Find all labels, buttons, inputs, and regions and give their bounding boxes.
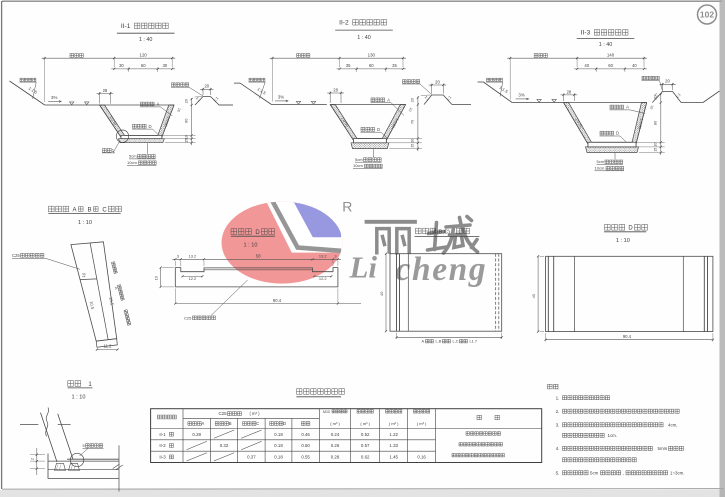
svg-text:35: 35 xyxy=(346,63,351,68)
svg-text:B: B xyxy=(87,207,91,213)
svg-text:120: 120 xyxy=(140,53,148,58)
svg-text:cheng: cheng xyxy=(396,251,488,288)
svg-text:A: A xyxy=(202,421,205,426)
svg-text:,: , xyxy=(623,470,624,475)
svg-text:1 : 10: 1 : 10 xyxy=(244,242,258,248)
svg-text:2: 2 xyxy=(31,458,35,460)
svg-text:90.4: 90.4 xyxy=(623,334,632,339)
svg-text:10: 10 xyxy=(411,139,415,143)
svg-text:L,B: L,B xyxy=(436,339,442,344)
svg-text:0.18: 0.18 xyxy=(274,455,283,460)
svg-text:4.: 4. xyxy=(556,446,560,451)
svg-text:0.26: 0.26 xyxy=(331,443,340,448)
svg-text:3%: 3% xyxy=(278,94,284,99)
svg-text:58: 58 xyxy=(256,254,261,259)
svg-text:( m³ ): ( m³ ) xyxy=(360,421,370,426)
svg-text:D: D xyxy=(377,127,380,132)
svg-text:0.55: 0.55 xyxy=(301,455,310,460)
svg-text:0.18: 0.18 xyxy=(274,432,283,437)
svg-text:30: 30 xyxy=(163,63,168,68)
svg-text:5cm: 5cm xyxy=(129,154,137,159)
svg-text:0.32: 0.32 xyxy=(220,443,229,448)
svg-text:15: 15 xyxy=(654,148,658,152)
svg-text:1cm.: 1cm. xyxy=(608,433,618,438)
svg-text:A: A xyxy=(626,105,629,110)
svg-text:60: 60 xyxy=(369,63,374,68)
svg-text:3%: 3% xyxy=(51,95,57,100)
svg-text:3: 3 xyxy=(177,254,179,259)
svg-text:4cm,: 4cm, xyxy=(668,422,678,427)
svg-text:10cm: 10cm xyxy=(127,160,137,165)
svg-text:3.: 3. xyxy=(556,422,560,427)
svg-text:B: B xyxy=(229,421,232,426)
svg-text:0.52: 0.52 xyxy=(361,432,370,437)
svg-text:( m³ ): ( m³ ) xyxy=(330,421,340,426)
svg-text:35: 35 xyxy=(392,63,397,68)
svg-text:D: D xyxy=(628,226,633,232)
svg-text:28: 28 xyxy=(333,87,338,92)
svg-text:A(B,C): A(B,C) xyxy=(433,229,450,235)
svg-text:D: D xyxy=(616,131,619,136)
svg-text:C: C xyxy=(102,207,107,213)
svg-text:C25: C25 xyxy=(12,253,20,258)
svg-text:13.2: 13.2 xyxy=(189,254,197,259)
svg-text:3: 3 xyxy=(334,254,336,259)
svg-text:A: A xyxy=(157,102,160,107)
svg-text:0.46: 0.46 xyxy=(301,432,310,437)
svg-text:1.22: 1.22 xyxy=(389,432,398,437)
svg-text:M10: M10 xyxy=(323,410,330,414)
svg-text:II-3: II-3 xyxy=(581,30,591,37)
svg-text:1 : 40: 1 : 40 xyxy=(139,37,153,43)
svg-text:0.50: 0.50 xyxy=(301,443,310,448)
svg-text:5cm: 5cm xyxy=(355,157,363,162)
svg-text:10: 10 xyxy=(654,143,658,147)
svg-text:C: C xyxy=(256,421,259,426)
svg-text:1.: 1. xyxy=(556,395,560,400)
svg-text::: : xyxy=(557,384,558,390)
svg-text:1.33: 1.33 xyxy=(389,443,398,448)
svg-text:D: D xyxy=(283,421,286,426)
svg-text:2.: 2. xyxy=(556,409,560,414)
svg-text:3%: 3% xyxy=(518,92,524,97)
svg-text:II-3: II-3 xyxy=(159,455,166,460)
svg-text:1~3cm.: 1~3cm. xyxy=(670,470,685,475)
svg-text:II-2: II-2 xyxy=(159,443,166,448)
svg-text:20: 20 xyxy=(435,79,440,84)
svg-text:0.37: 0.37 xyxy=(247,455,256,460)
svg-text:L1.7: L1.7 xyxy=(470,339,478,344)
svg-text:R: R xyxy=(342,199,352,215)
svg-text:( m³ ): ( m³ ) xyxy=(250,411,261,416)
svg-text:1 : 10: 1 : 10 xyxy=(78,220,92,226)
svg-text:0.18: 0.18 xyxy=(274,443,283,448)
svg-text:90.4: 90.4 xyxy=(273,298,282,303)
svg-text:5cm: 5cm xyxy=(597,159,605,164)
svg-text:( m³ ): ( m³ ) xyxy=(389,421,399,426)
svg-text:28: 28 xyxy=(103,88,108,93)
svg-text:A: A xyxy=(387,97,390,102)
svg-text:A: A xyxy=(422,339,425,344)
svg-text:28: 28 xyxy=(567,89,572,94)
svg-text:Li: Li xyxy=(349,250,378,285)
svg-text:10cm: 10cm xyxy=(595,165,605,170)
svg-text:( m³ ): ( m³ ) xyxy=(417,421,427,426)
svg-text:13.2: 13.2 xyxy=(319,254,327,259)
svg-text:60: 60 xyxy=(608,63,613,68)
svg-text:5: 5 xyxy=(83,443,85,448)
svg-text:C25: C25 xyxy=(218,411,227,416)
svg-text:1 : 40: 1 : 40 xyxy=(599,42,613,48)
svg-text:40: 40 xyxy=(632,63,637,68)
svg-text:D: D xyxy=(148,124,151,129)
svg-text:20: 20 xyxy=(204,84,209,89)
svg-text:40: 40 xyxy=(584,63,589,68)
svg-text:12.2: 12.2 xyxy=(319,276,327,281)
svg-text:15: 15 xyxy=(184,139,188,143)
svg-text:L,C: L,C xyxy=(453,339,459,344)
svg-text:C25: C25 xyxy=(184,316,192,321)
svg-text:130: 130 xyxy=(368,53,376,58)
svg-text:5mm: 5mm xyxy=(658,446,668,451)
svg-text:1 : 40: 1 : 40 xyxy=(357,35,371,41)
svg-text:1 : 10: 1 : 10 xyxy=(72,394,86,400)
svg-text:5cm: 5cm xyxy=(590,470,599,475)
svg-text:D: D xyxy=(255,230,260,236)
svg-text:10: 10 xyxy=(184,135,188,139)
svg-text:12.2: 12.2 xyxy=(189,276,197,281)
svg-text:5.: 5. xyxy=(556,470,560,475)
svg-text:0.57: 0.57 xyxy=(361,443,370,448)
svg-text:10cm: 10cm xyxy=(353,163,363,168)
svg-text:15: 15 xyxy=(411,144,415,148)
svg-text:0.24: 0.24 xyxy=(331,432,340,437)
svg-text:0.28: 0.28 xyxy=(192,432,201,437)
svg-text:20: 20 xyxy=(665,79,670,84)
svg-text:140: 140 xyxy=(607,53,615,58)
svg-text:II-2: II-2 xyxy=(339,20,349,27)
svg-text:1.45: 1.45 xyxy=(389,455,398,460)
svg-text:A: A xyxy=(72,207,76,213)
svg-text:60: 60 xyxy=(141,63,146,68)
svg-text:0.28: 0.28 xyxy=(331,455,340,460)
svg-text:0.62: 0.62 xyxy=(361,455,370,460)
svg-text:II-1: II-1 xyxy=(121,23,131,30)
svg-text:II-1: II-1 xyxy=(159,432,166,437)
svg-text:102: 102 xyxy=(700,10,714,20)
svg-text:30: 30 xyxy=(119,63,124,68)
svg-text:0.16: 0.16 xyxy=(417,455,426,460)
svg-text:11.2: 11.2 xyxy=(104,343,113,348)
svg-text:1 : 10: 1 : 10 xyxy=(616,238,630,244)
